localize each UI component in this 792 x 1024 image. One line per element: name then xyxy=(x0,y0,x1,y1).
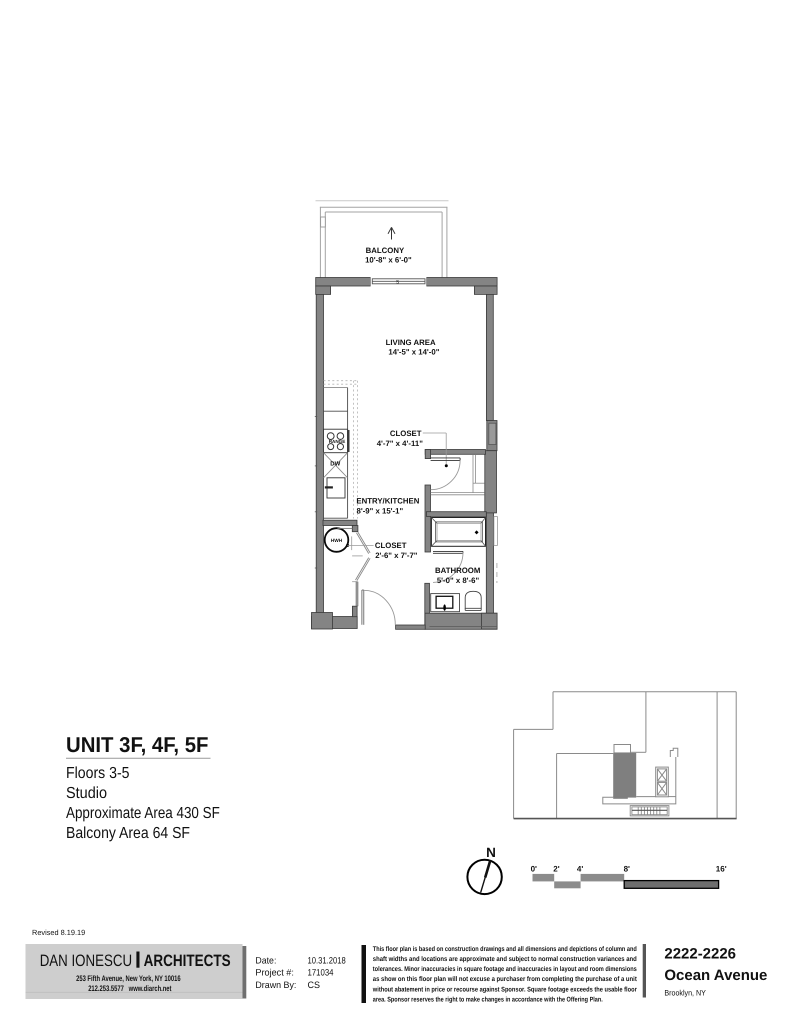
svg-text:without abatement in price or: without abatement in price or recourse a… xyxy=(372,986,637,993)
svg-text:RANGE: RANGE xyxy=(329,439,346,444)
svg-text:2': 2' xyxy=(553,865,559,874)
svg-text:4': 4' xyxy=(577,865,583,874)
svg-text:2'-6" x 7'-7": 2'-6" x 7'-7" xyxy=(375,551,418,560)
svg-text:10.31.2018: 10.31.2018 xyxy=(308,956,346,966)
svg-text:This floor plan is based on co: This floor plan is based on construction… xyxy=(373,946,637,953)
svg-text:Studio: Studio xyxy=(66,785,107,802)
svg-text:BALCONY: BALCONY xyxy=(366,246,405,255)
svg-text:2222-2226: 2222-2226 xyxy=(664,946,736,963)
svg-text:DW: DW xyxy=(330,460,340,467)
svg-text:shaft widths and locations are: shaft widths and locations are approxima… xyxy=(373,956,637,963)
svg-text:16': 16' xyxy=(716,865,727,874)
svg-text:UNIT 3F, 4F, 5F: UNIT 3F, 4F, 5F xyxy=(66,733,209,757)
svg-text:area. Sponsor reserves the rig: area. Sponsor reserves the right to make… xyxy=(373,996,603,1003)
svg-text:8'-9" x 15'-1": 8'-9" x 15'-1" xyxy=(357,507,404,516)
svg-text:253 Fifth Avenue, New York, NY: 253 Fifth Avenue, New York, NY 10016 xyxy=(76,974,181,983)
svg-text:Floors 3-5: Floors 3-5 xyxy=(66,765,130,782)
svg-text:5'-0" x 8'-6": 5'-0" x 8'-6" xyxy=(437,576,480,585)
svg-text:Approximate Area 430 SF: Approximate Area 430 SF xyxy=(66,805,220,822)
svg-text:tolerances. Minor inaccuracies: tolerances. Minor inaccuracies in square… xyxy=(373,966,637,973)
svg-text:0': 0' xyxy=(531,865,537,874)
svg-text:as show on this floor plan wil: as show on this floor plan will not excu… xyxy=(373,976,638,983)
svg-text:ENTRY/KITCHEN: ENTRY/KITCHEN xyxy=(356,497,419,506)
svg-text:CLOSET: CLOSET xyxy=(390,429,422,438)
svg-text:Balcony Area 64 SF: Balcony Area 64 SF xyxy=(66,825,190,842)
svg-text:HWH: HWH xyxy=(331,538,343,544)
svg-text:4'-7" x 4'-11": 4'-7" x 4'-11" xyxy=(377,439,424,448)
svg-text:N: N xyxy=(486,845,496,860)
svg-text:CLOSET: CLOSET xyxy=(375,541,407,550)
svg-text:212.253.5577 www.diarch.net: 212.253.5577 www.diarch.net xyxy=(88,984,172,993)
svg-text:CS: CS xyxy=(308,980,321,990)
svg-text:10'-8" x 6'-0": 10'-8" x 6'-0" xyxy=(365,256,412,265)
svg-text:Ocean Avenue: Ocean Avenue xyxy=(664,967,767,984)
svg-text:BATHROOM: BATHROOM xyxy=(435,566,480,575)
svg-text:Date:: Date: xyxy=(255,956,276,966)
svg-text:Brooklyn, NY: Brooklyn, NY xyxy=(664,988,706,997)
svg-text:14'-5" x 14'-0": 14'-5" x 14'-0" xyxy=(388,348,439,357)
svg-text:8': 8' xyxy=(624,865,630,874)
svg-text:171034: 171034 xyxy=(308,968,334,978)
svg-text:Project #:: Project #: xyxy=(255,968,294,978)
svg-text:LIVING AREA: LIVING AREA xyxy=(386,338,436,347)
svg-text:ARCHITECTS: ARCHITECTS xyxy=(144,952,231,970)
svg-text:Drawn By:: Drawn By: xyxy=(255,980,296,990)
svg-text:Revised 8.19.19: Revised 8.19.19 xyxy=(32,928,85,937)
svg-text:DAN IONESCU: DAN IONESCU xyxy=(40,952,132,970)
